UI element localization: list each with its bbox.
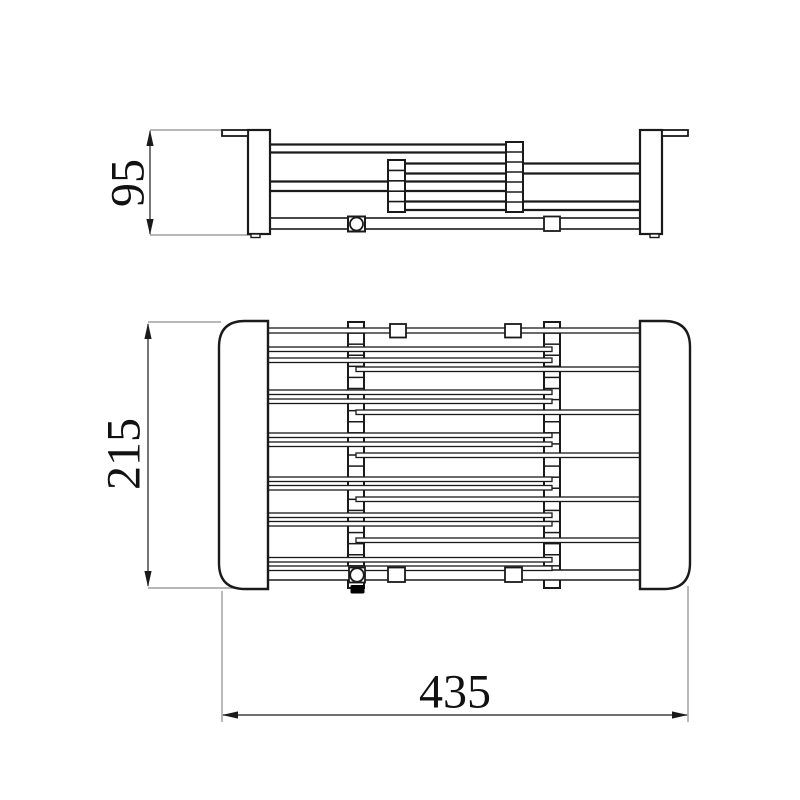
connector-stack-left — [388, 160, 405, 212]
inner-wire — [268, 433, 552, 438]
dimension-height-label: 95 — [102, 159, 155, 207]
inner-wire — [268, 358, 552, 363]
bottom-frame-tube — [268, 570, 640, 580]
bottom-tube — [270, 218, 640, 229]
inner-wire — [268, 486, 552, 491]
outer-wire — [356, 497, 640, 502]
outer-wire — [356, 453, 640, 458]
top-plan-view — [219, 321, 690, 594]
dimension-arrowhead — [144, 323, 151, 339]
inner-wire — [268, 558, 552, 563]
inner-wire — [268, 477, 552, 482]
left-hook — [222, 130, 248, 136]
dimension-arrowhead — [222, 711, 238, 718]
tube-slider — [390, 324, 406, 338]
dimension-arrowhead — [144, 571, 151, 587]
inner-wire — [268, 522, 552, 527]
tube-slider — [388, 568, 405, 583]
inner-wire — [268, 347, 552, 352]
outer-wire — [356, 367, 640, 372]
right-foot — [650, 234, 659, 238]
right-end-cap — [640, 321, 690, 589]
inner-wire — [268, 399, 552, 404]
dimension-arrowhead — [672, 711, 688, 718]
dimension-arrowhead — [146, 130, 153, 146]
side-elevation-view — [222, 130, 688, 238]
knob-grip — [351, 585, 365, 594]
left-foot — [251, 234, 260, 238]
outer-wire — [356, 410, 640, 415]
dimension-width-label: 435 — [419, 666, 491, 719]
right-end-post — [640, 130, 662, 234]
outer-wire — [356, 538, 640, 543]
locking-knob-icon — [350, 218, 363, 231]
left-end-cap — [219, 321, 268, 589]
inner-wire — [268, 442, 552, 447]
right-hook — [662, 130, 688, 136]
left-end-post — [248, 130, 270, 234]
tube-slider — [544, 217, 560, 232]
inner-wire — [268, 390, 552, 395]
locking-knob-icon — [350, 568, 364, 582]
top-frame-tube — [268, 328, 640, 333]
tube-slider — [505, 568, 522, 583]
tube-slider — [505, 324, 521, 338]
dimension-arrowhead — [146, 219, 153, 235]
inner-wire — [268, 513, 552, 518]
dimension-depth-label: 215 — [98, 418, 151, 490]
technical-drawing: 95 215 435 — [0, 0, 800, 800]
drawing-canvas: 95 215 435 — [0, 0, 800, 800]
